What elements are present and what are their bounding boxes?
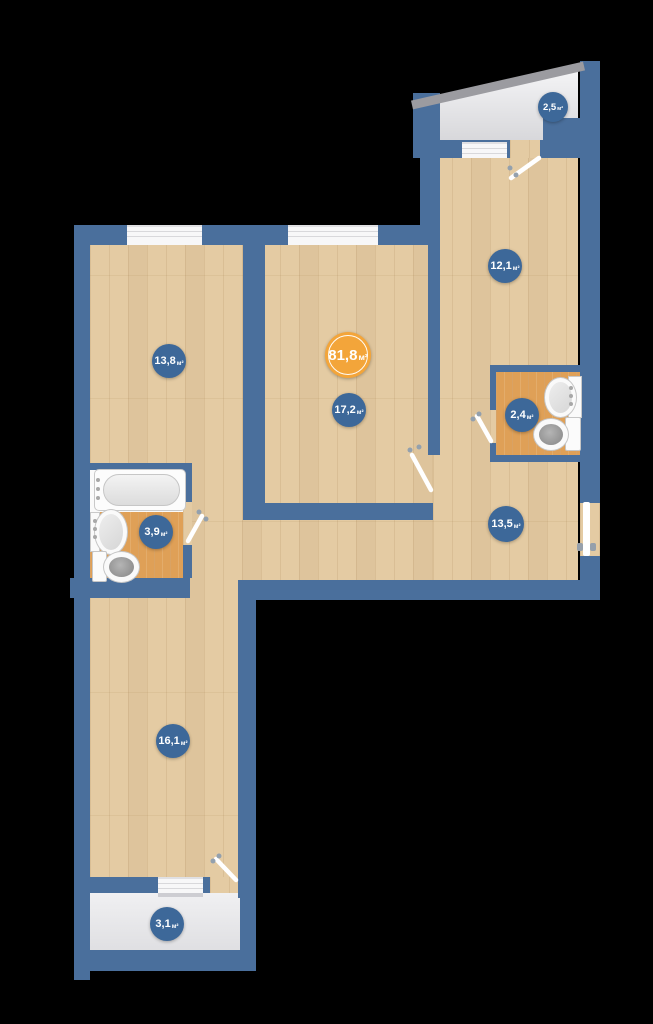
wall-balcony-bottom-right	[240, 898, 256, 958]
area-value: 2,4	[510, 409, 525, 421]
faucet-dot	[93, 535, 97, 539]
area-label-bathroom-3-9: 3,9м²	[139, 515, 173, 549]
faucet-dot	[93, 519, 97, 523]
wall-hall-bottom	[238, 580, 600, 600]
area-unit: м²	[358, 352, 367, 362]
area-unit: м²	[357, 409, 364, 416]
area-unit: м²	[181, 740, 188, 747]
toilet-symbol	[533, 418, 569, 451]
wall-bath-2-4-bottom	[490, 455, 580, 462]
faucet-dot	[569, 402, 573, 406]
sink-basin	[99, 514, 123, 550]
area-value: 81,8	[328, 347, 357, 364]
area-unit: м²	[527, 414, 534, 421]
toilet-symbol	[103, 551, 140, 583]
window-room-13-8	[127, 225, 202, 245]
sink-symbol	[94, 509, 128, 555]
area-label-room-13-8: 13,8м²	[152, 344, 186, 378]
area-value: 3,9	[144, 526, 159, 538]
faucet-dot	[96, 496, 100, 500]
window-balcony-bottom	[158, 877, 203, 893]
floor-plan-canvas: 2,5м² 12,1м² 13,8м² 81,8м² 17,2м² 2,4м² …	[0, 0, 653, 1024]
wall-divider-13-17	[243, 225, 265, 517]
bathtub-basin	[103, 474, 180, 506]
area-unit: м²	[177, 360, 184, 367]
opening-balcony-top-door	[510, 140, 540, 158]
opening-bath-2-4-door	[490, 410, 496, 443]
area-value: 3,1	[155, 918, 170, 930]
faucet-dot	[569, 394, 573, 398]
faucet-dot	[93, 527, 97, 531]
area-unit: м²	[172, 923, 179, 930]
opening-balcony-bottom-door	[210, 877, 238, 893]
area-unit: м²	[161, 531, 168, 538]
area-unit: м²	[513, 265, 520, 272]
wall-balcony-top-left	[413, 93, 440, 158]
faucet-dot	[96, 487, 100, 491]
bathtub-symbol	[94, 469, 186, 511]
area-label-balcony-top: 2,5м²	[538, 92, 568, 122]
wall-divider-17-12	[428, 245, 440, 455]
faucet-dot	[569, 386, 573, 390]
area-value: 13,5	[491, 518, 512, 530]
area-value: 13,8	[154, 355, 175, 367]
wall-room-16-right	[238, 580, 256, 898]
area-value: 17,2	[334, 404, 355, 416]
area-unit: м²	[514, 523, 521, 530]
wall-bath-2-4-top	[490, 365, 580, 372]
window-balcony-top	[462, 142, 507, 158]
toilet-bowl	[539, 424, 563, 445]
wall-outer-left	[74, 225, 90, 980]
area-label-total: 81,8м²	[325, 332, 371, 378]
area-value: 12,1	[490, 260, 511, 272]
area-label-bathroom-2-4: 2,4м²	[505, 398, 539, 432]
wall-balcony-top-corner	[543, 118, 580, 158]
area-label-room-16-1: 16,1м²	[156, 724, 190, 758]
area-label-room-12-1: 12,1м²	[488, 249, 522, 283]
area-label-room-17-2: 17,2м²	[332, 393, 366, 427]
area-value: 16,1	[158, 735, 179, 747]
area-label-balcony-bottom: 3,1м²	[150, 907, 184, 941]
toilet-bowl	[109, 557, 134, 577]
area-label-hallway-13-5: 13,5м²	[488, 506, 524, 542]
wall-room-17-bottom	[243, 503, 433, 520]
wall-balcony-bottom-bottom	[74, 950, 256, 971]
window-room-17-2	[288, 225, 378, 245]
area-unit: м²	[557, 106, 563, 112]
area-value: 2,5	[543, 102, 556, 113]
opening-entrance-door	[580, 503, 600, 556]
faucet-dot	[96, 478, 100, 482]
